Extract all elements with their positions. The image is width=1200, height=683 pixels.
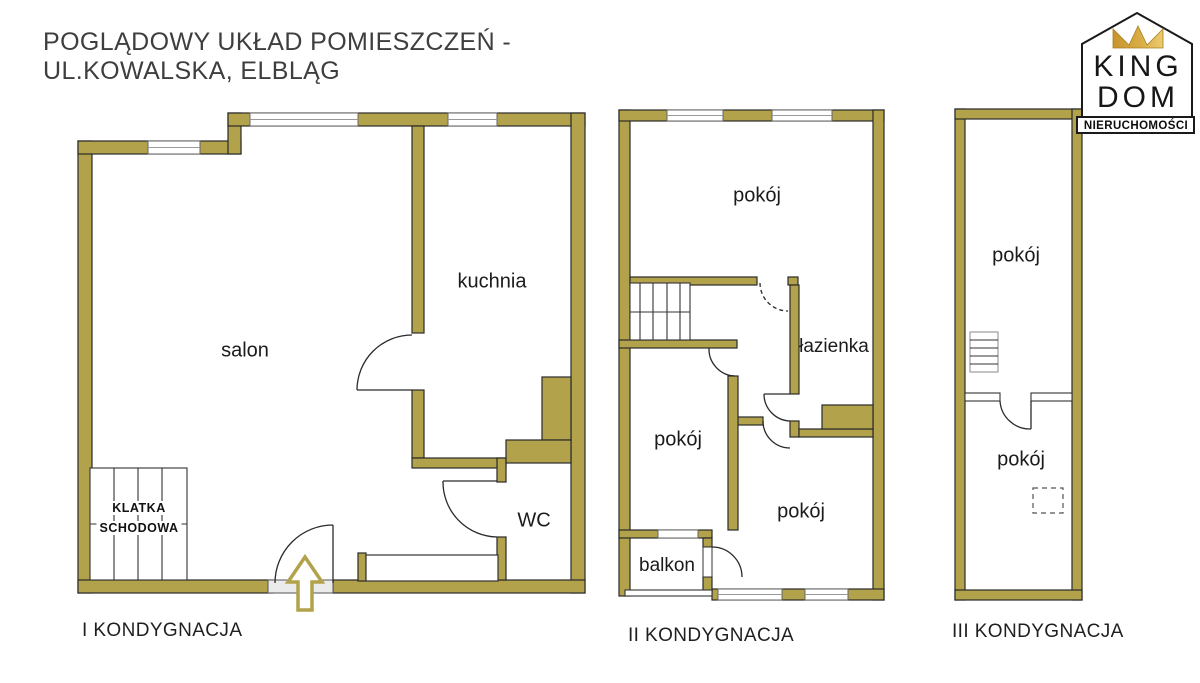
floor-2-interior [625, 283, 790, 596]
f1-kitchen-divider-upper [412, 126, 424, 333]
f2-left-wall [619, 110, 630, 596]
door-arc [712, 547, 742, 577]
f1-chimney-block-upper [542, 377, 571, 440]
f1-chimney-block-lower [506, 440, 571, 463]
room-label-pokoj-right-f2: pokój [777, 501, 825, 524]
f2-bath-bottom-wall [799, 429, 873, 437]
floor-2-label: II KONDYGNACJA [628, 625, 794, 647]
f2-door-arcs [709, 283, 790, 577]
door-arc [1000, 401, 1031, 429]
floor-1-interior [90, 335, 498, 610]
f2-room-divider [728, 376, 738, 530]
logo-word-dom: DOM [1097, 81, 1179, 115]
door-arc [443, 481, 497, 537]
f3-staircase [970, 332, 998, 372]
room-label-lazienka: łazienka [799, 336, 869, 358]
f2-midwall-stub [788, 277, 798, 285]
f2-bath-left-wall [790, 285, 799, 394]
f3-divider-wall-left [965, 393, 1000, 401]
entrance-arrow-icon [288, 557, 322, 610]
f3-top-wall [955, 109, 1082, 119]
door-arc [764, 394, 790, 421]
f2-balcony-wall-stub-top [703, 538, 712, 547]
f3-roof-window-dashed [1033, 488, 1063, 513]
f1-kitchen-divider-lower [412, 390, 424, 458]
f3-door-arcs [1000, 401, 1031, 429]
f1-right-wall [571, 113, 585, 593]
room-label-pokoj-left-f2: pokój [654, 429, 702, 452]
door-arc [763, 421, 790, 448]
f1-kitchen-bottom-wall [412, 458, 506, 468]
door-arc [709, 348, 735, 376]
room-label-pokoj-top-f3: pokój [992, 245, 1040, 268]
f2-hall-bottom-wall [737, 417, 763, 425]
room-label-pokoj-bottom-f3: pokój [997, 449, 1045, 472]
window [658, 530, 698, 538]
floor-1-label: I KONDYGNACJA [82, 620, 242, 642]
f2-top-wall [619, 110, 884, 121]
logo-word-king: KING [1093, 50, 1182, 84]
page-subtitle: UL.KOWALSKA, ELBLĄG [43, 57, 340, 85]
floor-3-label: III KONDYGNACJA [952, 621, 1124, 643]
floor-3-interior [965, 332, 1072, 513]
f2-chimney-block [822, 405, 873, 429]
f1-wc-door-stub [497, 458, 506, 482]
f2-staircase [630, 283, 690, 340]
room-label-kuchnia: kuchnia [458, 271, 527, 294]
f3-right-wall [1072, 109, 1082, 600]
page-title: POGLĄDOWY UKŁAD POMIESZCZEŃ -UL.KOWALSKA… [43, 28, 511, 86]
floorplan-page: POGLĄDOWY UKŁAD POMIESZCZEŃ -UL.KOWALSKA… [0, 0, 1200, 683]
f3-divider-wall-right [1031, 393, 1072, 401]
logo-tagline: NIERUCHOMOŚCI [1084, 120, 1188, 132]
f3-bottom-wall [955, 590, 1082, 600]
f3-left-wall [955, 109, 965, 600]
f2-left-room-top-wall [619, 340, 737, 348]
f1-bottom-wall-right [333, 580, 585, 593]
f2-bath-left-stub [790, 421, 799, 437]
f2-balcony-edge [625, 590, 712, 596]
f1-bottom-wall-left [78, 580, 273, 593]
room-label-salon: salon [221, 340, 269, 363]
floorplan-canvas [0, 0, 1200, 683]
f1-hall-stub-wall [358, 553, 366, 581]
f2-balcony-door-leaf [703, 547, 712, 577]
room-label-balkon: balkon [639, 555, 695, 577]
door-arc [357, 335, 412, 390]
stairwell-label-line1: KLATKA [109, 501, 168, 515]
door-arc-dashed [760, 283, 788, 311]
room-label-wc: WC [517, 510, 550, 533]
stairwell-label-line2: SCHODOWA [97, 521, 182, 535]
room-label-pokoj-top-f2: pokój [733, 185, 781, 208]
f1-hall-cabinet [366, 555, 498, 581]
f2-right-wall [873, 110, 884, 600]
